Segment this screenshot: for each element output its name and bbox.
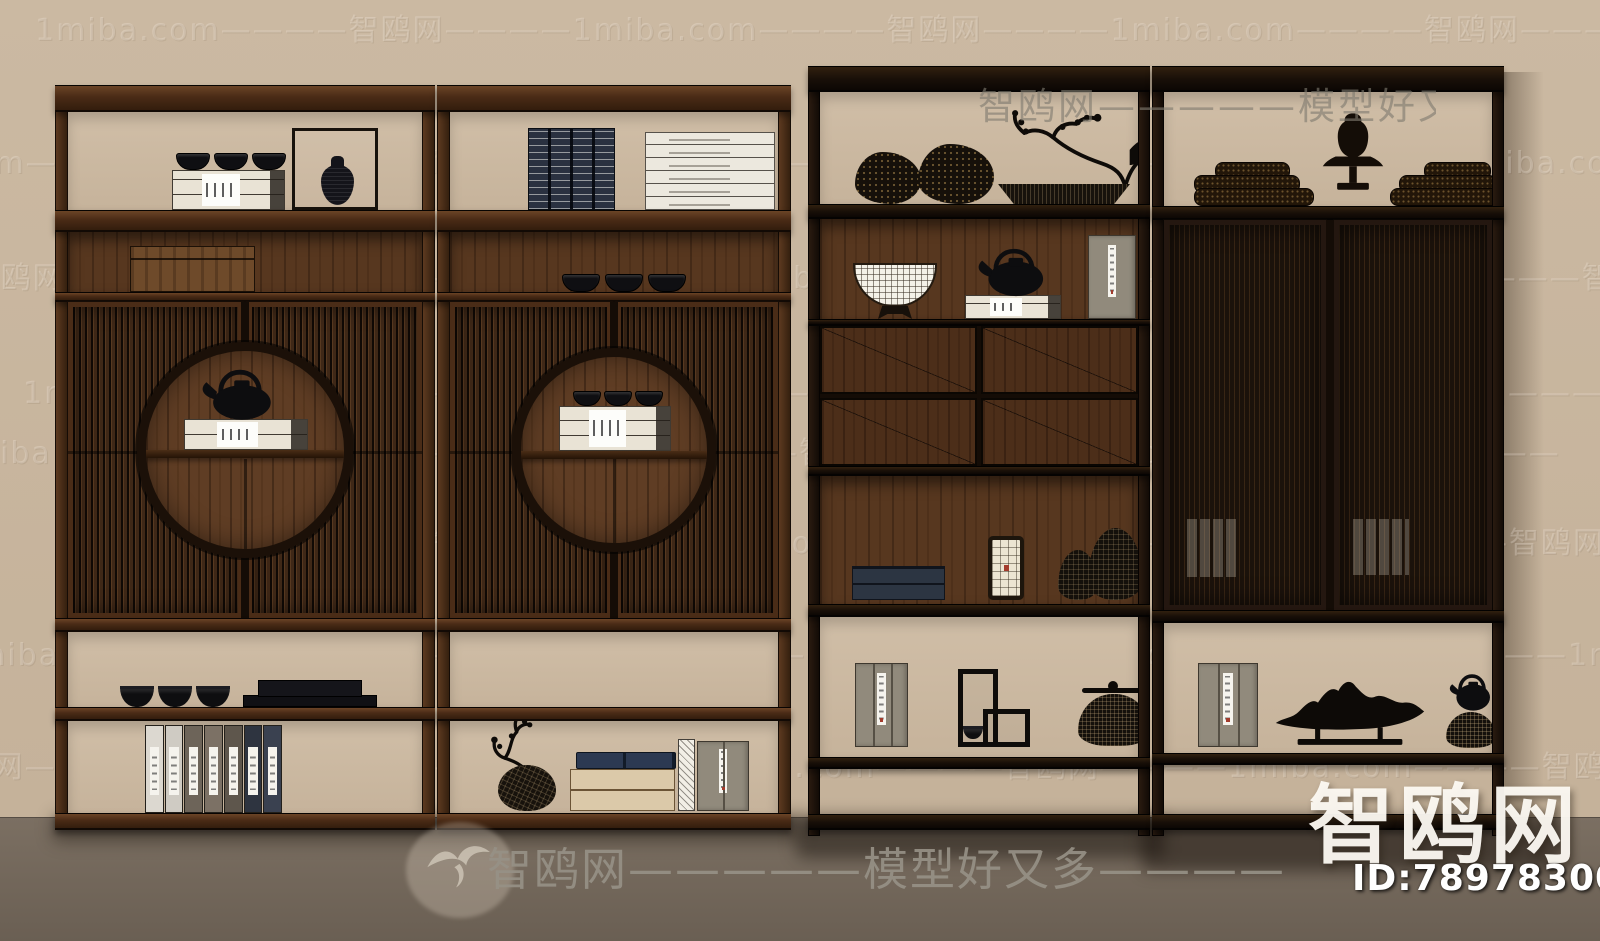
books-behind-door <box>1187 519 1237 577</box>
cabinet-2 <box>437 85 791 830</box>
open-shelf-bottom <box>820 617 1138 757</box>
book-label <box>150 747 159 795</box>
watermark-tile-row: 1miba.com————智鸥网————1miba.com————智鸥网————… <box>35 5 1600 49</box>
woven-round-box <box>1078 694 1138 746</box>
bonsai-pot <box>998 184 1130 204</box>
black-box <box>258 680 362 697</box>
book-box-stack <box>559 406 671 451</box>
open-shelf-top <box>820 92 1138 204</box>
cabinet-post <box>808 66 820 836</box>
shelf-beam <box>55 292 435 302</box>
drawer <box>981 398 1138 466</box>
base-rail <box>437 813 791 830</box>
shelf-beam <box>55 618 435 632</box>
table-lantern <box>988 536 1024 600</box>
wood-back-shelf <box>820 476 1138 604</box>
shelf-beam <box>437 210 791 232</box>
book-label <box>189 747 198 795</box>
shelf-beam <box>437 292 791 302</box>
cabinet-beam <box>808 66 1150 92</box>
scroll-pile <box>1390 162 1492 206</box>
book-spine <box>224 725 243 813</box>
book-divider <box>1238 664 1240 746</box>
shelf-beam <box>808 204 1150 219</box>
cabinet-post <box>1138 66 1150 836</box>
tea-cup <box>648 274 686 292</box>
drawer <box>820 326 977 394</box>
cabinet-3 <box>808 66 1150 836</box>
panel-gap <box>244 459 247 558</box>
black-bowl <box>196 686 230 707</box>
open-shelf-mid <box>68 632 422 707</box>
cabinet-post <box>1152 66 1164 836</box>
shelf-beam <box>808 604 1150 617</box>
shelf-beam <box>808 466 1150 476</box>
black-bowl <box>158 686 192 707</box>
black-vase <box>321 165 354 205</box>
display-case <box>292 128 378 210</box>
lattice-bowl <box>853 263 937 307</box>
open-shelf-mid <box>450 632 778 707</box>
circle-window <box>512 348 716 552</box>
scroll <box>1390 188 1492 206</box>
shelf-beam <box>808 757 1150 769</box>
circle-window <box>137 342 353 558</box>
book-spine <box>204 725 223 813</box>
black-bowl <box>120 686 154 707</box>
tea-cup <box>562 274 600 292</box>
book-spine <box>145 725 164 813</box>
wooden-box <box>130 246 255 292</box>
tea-cup <box>605 274 643 292</box>
book-spine <box>244 725 263 813</box>
tea-cup <box>252 153 286 170</box>
scholar-rock <box>855 152 921 204</box>
scroll-pile <box>1194 162 1312 206</box>
base-stretcher <box>808 814 1150 830</box>
book-divider <box>723 742 725 810</box>
drawer-bank <box>820 326 1138 466</box>
cream-book-boxes <box>570 769 675 811</box>
striped-books <box>528 128 615 210</box>
book-label <box>229 747 238 795</box>
open-shelf-bottom <box>1164 623 1492 753</box>
open-shelf-top <box>450 112 778 210</box>
shelf-beam <box>437 707 791 721</box>
book-spine <box>165 725 184 813</box>
scroll <box>1194 188 1314 206</box>
open-shelf-top <box>1164 92 1492 206</box>
wood-back-shelf <box>820 219 1138 319</box>
book-box-stack <box>172 170 285 210</box>
product-image-stage: 1miba.com————智鸥网————1miba.com————智鸥网————… <box>0 0 1600 941</box>
open-shelf-bottom <box>68 721 422 813</box>
shelf-beam <box>55 707 435 721</box>
book-box-stack <box>184 419 308 450</box>
wood-back-shelf <box>450 232 778 292</box>
wall-shadow <box>1502 72 1544 820</box>
drawer <box>981 326 1138 394</box>
tea-cup <box>604 391 632 406</box>
bowl-stand <box>878 306 912 319</box>
book-divider <box>891 664 893 746</box>
gray-book-set <box>697 741 749 811</box>
open-shelf-bottom <box>450 721 778 813</box>
cabinet-beam <box>437 85 791 112</box>
book-label <box>169 747 178 795</box>
model-id-label: ID:789783008 <box>1352 858 1600 899</box>
tea-cup <box>176 153 210 170</box>
shelf-beam <box>808 319 1150 326</box>
book-label <box>209 747 218 795</box>
standing-books <box>145 725 283 813</box>
slipcase <box>678 739 695 811</box>
tea-cup <box>214 153 248 170</box>
book-label <box>248 747 257 795</box>
door-stile <box>1326 220 1334 610</box>
gray-book-set <box>1198 663 1258 747</box>
handle-knob <box>1108 681 1118 691</box>
navy-book-stack <box>852 566 945 600</box>
gray-book-set <box>855 663 908 747</box>
tea-cup <box>635 391 663 406</box>
cabinet-beam <box>1152 66 1504 92</box>
circle-shelf <box>521 451 707 459</box>
book-label <box>268 747 277 795</box>
shelf-beam <box>1152 610 1504 623</box>
white-book-boxes <box>645 132 775 210</box>
open-shelf-top <box>68 112 422 210</box>
woven-vase-large <box>1088 528 1138 600</box>
navy-books <box>576 752 676 769</box>
cabinet-post <box>1492 66 1504 836</box>
display-stand-small <box>983 709 1030 747</box>
shelf-beam <box>1152 206 1504 220</box>
wood-back-shelf <box>68 232 422 292</box>
cabinet-4 <box>1152 66 1504 836</box>
drawer <box>820 398 977 466</box>
base-rail <box>55 813 435 830</box>
woven-vase <box>498 765 556 811</box>
books-behind-door <box>1353 519 1409 575</box>
shelf-beam <box>55 210 435 232</box>
book-spine <box>184 725 203 813</box>
gray-book-box <box>1088 235 1136 319</box>
book-divider <box>873 664 875 746</box>
cabinet-1 <box>55 85 435 830</box>
book-divider <box>1218 664 1220 746</box>
book-box-stack <box>965 295 1061 319</box>
shelf-beam <box>437 618 791 632</box>
tea-cup <box>573 391 601 406</box>
cabinet-beam <box>55 85 435 112</box>
dark-slatted-door-left <box>1164 220 1326 610</box>
book-spine <box>263 725 282 813</box>
woven-basket <box>1446 712 1492 748</box>
panel-gap <box>613 459 616 552</box>
dark-slatted-door-right <box>1334 220 1492 610</box>
circle-shelf <box>146 450 344 458</box>
